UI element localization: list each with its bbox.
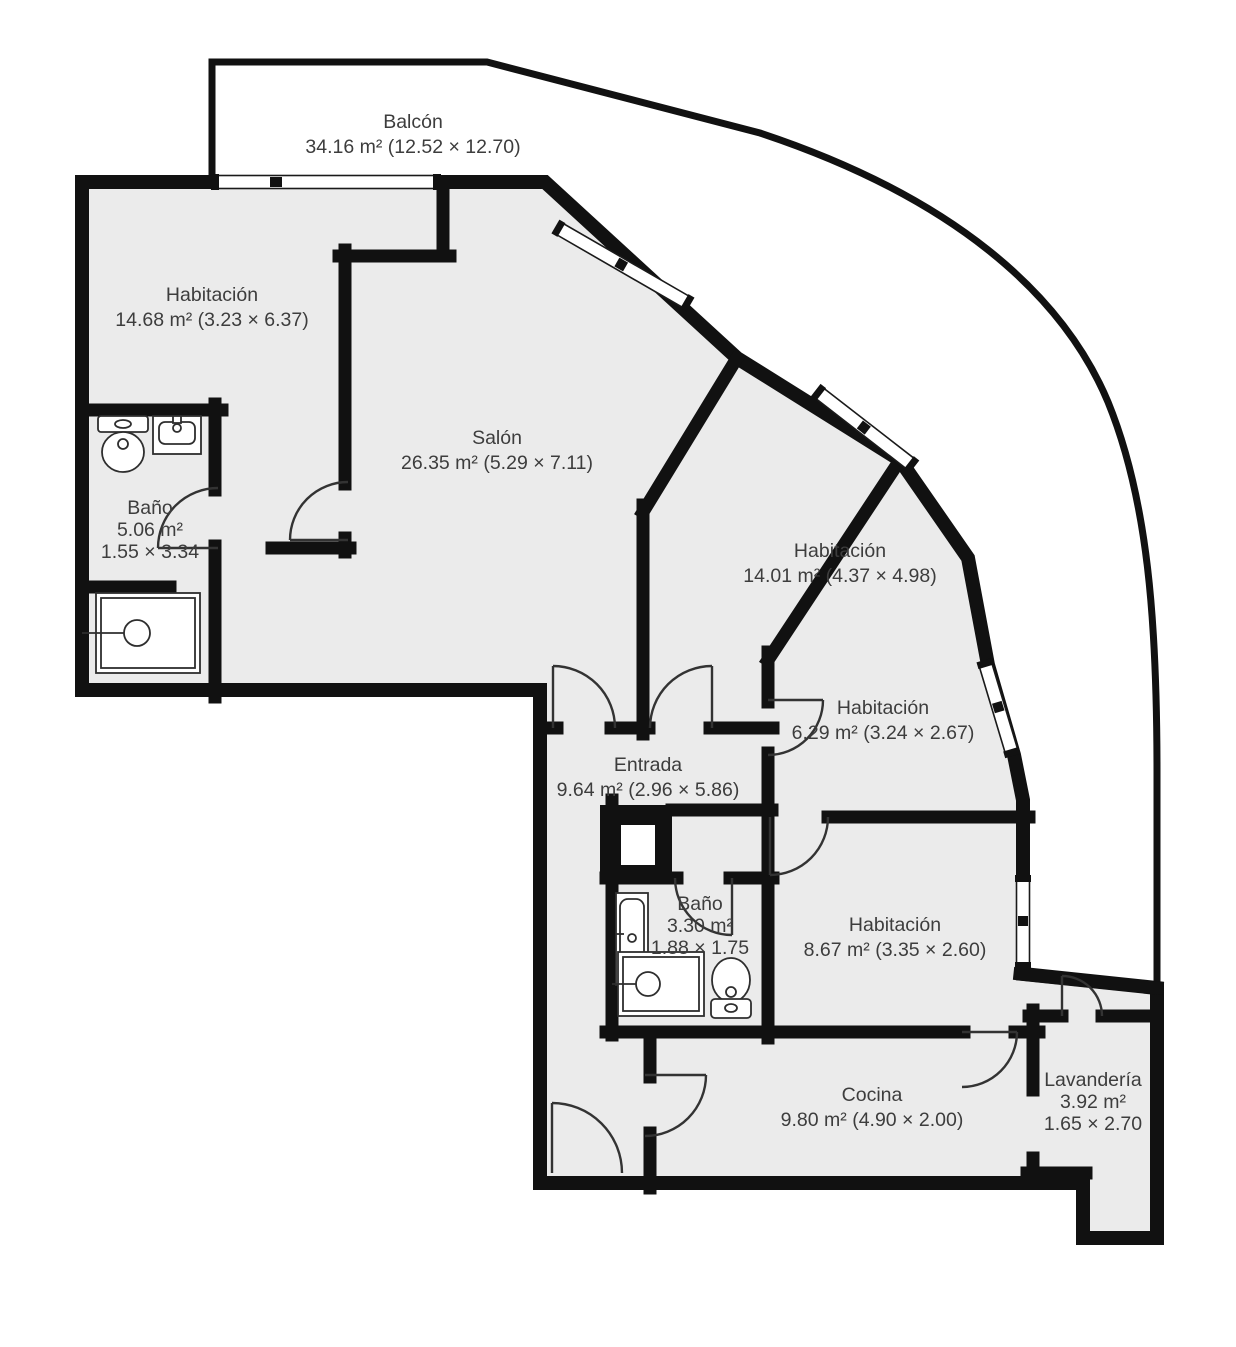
room-details: 26.35 m² (5.29 × 7.11) [401, 452, 593, 474]
toilet-fixture-bano-1 [98, 416, 148, 472]
room-details: 6.29 m² (3.24 × 2.67) [792, 722, 975, 744]
room-dims: 1.88 × 1.75 [651, 937, 749, 959]
floor-plan: Balcón 34.16 m² (12.52 × 12.70) Habitaci… [0, 0, 1236, 1347]
room-details: 14.68 m² (3.23 × 6.37) [115, 309, 309, 331]
room-name: Entrada [614, 754, 682, 776]
room-label-balcon: Balcón 34.16 m² (12.52 × 12.70) [305, 111, 520, 158]
room-name: Salón [472, 427, 522, 449]
room-details: 34.16 m² (12.52 × 12.70) [305, 136, 520, 158]
floor-plan-svg: Balcón 34.16 m² (12.52 × 12.70) Habitaci… [0, 0, 1236, 1347]
room-details: 14.01 m² (4.37 × 4.98) [743, 565, 937, 587]
toilet-fixture-bano-2 [711, 958, 751, 1018]
room-dims: 1.55 × 3.34 [101, 541, 199, 563]
window-habitacion-4 [1015, 875, 1031, 969]
room-area: 3.92 m² [1060, 1091, 1127, 1113]
window-habitacion-1 [211, 174, 441, 190]
room-area: 5.06 m² [117, 519, 184, 541]
room-name: Cocina [842, 1084, 903, 1106]
shower-fixture-bano-2 [612, 952, 704, 1016]
room-name: Baño [677, 893, 723, 915]
room-name: Baño [127, 497, 173, 519]
room-details: 8.67 m² (3.35 × 2.60) [804, 939, 987, 961]
shower-fixture-bano-1 [82, 593, 200, 673]
room-details: 9.80 m² (4.90 × 2.00) [781, 1109, 964, 1131]
room-area: 3.30 m² [667, 915, 734, 937]
room-name: Habitación [166, 284, 258, 306]
duct-shaft-opening [621, 825, 655, 865]
room-dims: 1.65 × 2.70 [1044, 1113, 1142, 1135]
room-name: Habitación [849, 914, 941, 936]
room-name: Lavandería [1044, 1069, 1142, 1091]
room-name: Balcón [383, 111, 443, 133]
room-details: 9.64 m² (2.96 × 5.86) [557, 779, 740, 801]
room-name: Habitación [837, 697, 929, 719]
room-name: Habitación [794, 540, 886, 562]
sink-fixture-bano-1 [153, 416, 201, 454]
